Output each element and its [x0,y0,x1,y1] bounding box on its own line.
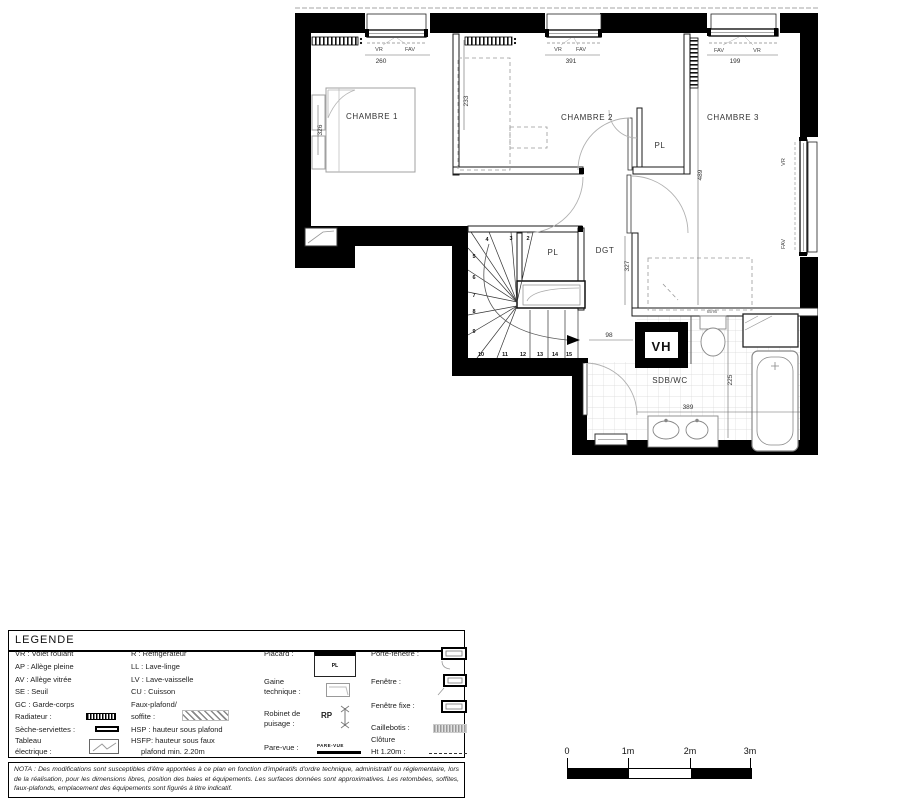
room-label-chambre3: CHAMBRE 3 [707,113,759,122]
gaine-icon [327,684,351,698]
zigzag-icon [90,740,120,755]
legend-item-fenetre-fixe: Fenêtre fixe : [371,701,415,710]
legend-item-seche-serviettes: Sèche-serviettes : [15,725,75,734]
placard-symbol-label: PL [332,663,338,669]
legend-item-soffite: soffite : [131,712,155,721]
parevue-symbol-label: PARE-VUE [317,743,344,748]
legend-item-vr: VR : Volet roulant [15,649,73,658]
scale-tick [750,758,751,768]
radiator-symbol [86,713,116,720]
step-3: 3 [509,236,512,242]
legend-item-gc: GC : Garde-corps [15,700,74,709]
soffit-hatch-symbol [182,710,229,721]
vh-label: VH [651,339,671,354]
step-12: 12 [520,352,526,358]
dim-326: 326 [317,124,324,135]
scale-label-1m: 1m [622,746,635,756]
legend-item-ll: LL : Lave-linge [131,662,180,671]
radiator-chambre2 [465,37,512,45]
label-right-vr: VR [781,158,787,166]
legend-item-porte-fenetre: Porte-fenêtre : [371,649,419,658]
step-14: 14 [552,352,559,358]
dim-389: 389 [683,404,694,411]
fenetre-fixe-icon [437,699,469,715]
step-5: 5 [472,254,475,260]
step-4: 4 [485,237,489,243]
interior-walls [453,34,818,316]
step-13: 13 [537,352,543,358]
legend-item-av: AV : Allège vitrée [15,675,72,684]
window-3 [707,14,778,45]
label-w3-vr: VR [753,48,761,54]
room-label-chambre1: CHAMBRE 1 [346,112,398,121]
room-label-dgt: DGT [596,246,615,255]
step-8: 8 [472,309,475,315]
door-arc-placard [609,110,637,138]
dim-391: 391 [566,58,577,65]
step-10: 10 [478,352,484,358]
legend-item-r: R : Réfrigérateur [131,649,186,658]
placard-symbol: PL [314,651,356,677]
label-w1-vr: VR [375,47,383,53]
label-w2-vr: VR [554,47,562,53]
door-arc-chambre2 [578,118,630,170]
dim-199: 199 [730,58,741,65]
step-15: 15 [566,352,572,358]
label-w2-fav: FAV [576,47,586,53]
legend-item-placard: Placard : [264,649,294,658]
dim-225: 225 [727,374,734,385]
legend-item-technique: technique : [264,687,301,696]
floorplan-drawing: 2 3 4 5 6 7 8 9 10 11 12 13 14 15 [295,0,818,458]
step-11: 11 [502,352,508,358]
scale-label-0: 0 [564,746,569,756]
door-arc-chambre3 [631,176,688,233]
dim-489: 489 [697,169,704,180]
legend-item-faux-plafond: Faux-plafond/ [131,700,177,709]
legend-item-robinet: Robinet de [264,709,300,718]
legend-item-ht120: Ht 1.20m : [371,747,406,756]
step-7: 7 [472,293,475,299]
door-arc-hall [527,177,583,233]
legend-title: LEGENDE [15,634,75,646]
door-leaf-chambre3 [627,175,631,233]
scale-bar-segment [691,769,751,778]
fenetre-icon [437,673,469,697]
furniture-chambre3-dashed [648,258,752,310]
wardrobe-chambre2-dashed [458,58,547,170]
legend-item-cu: CU : Cuisson [131,687,175,696]
scale-label-2m: 2m [684,746,697,756]
door-leaf-sdb [583,363,587,415]
cloture-symbol [429,753,467,754]
scale-label-3m: 3m [744,746,757,756]
scale-tick [628,758,629,768]
scale-tick [567,758,568,768]
legend-item-hsp: HSP : hauteur sous plafond [131,725,223,734]
dim-327: 327 [624,260,631,271]
vh-duct: VH [635,322,688,368]
dim-98: 98 [605,332,613,339]
legend-item-fenetre: Fenêtre : [371,677,401,686]
caillebotis-symbol [433,724,467,733]
window-2 [545,14,602,45]
legend-item-radiateur: Radiateur : [15,712,52,721]
legend-item-parevue: Pare-vue : [264,743,299,752]
radiator-chambre1 [312,37,358,45]
bed-chambre1 [312,88,415,172]
legend-item-tableau: Tableau [15,736,41,745]
staircase: 2 3 4 5 6 7 8 9 10 11 12 13 14 15 [468,232,585,358]
nota-box: NOTA : Des modifications sont susceptibl… [8,762,465,798]
legend-box: LEGENDE VR : Volet roulant AP : Allège p… [8,630,465,758]
radiators [312,37,698,88]
room-label-sdb: SDB/WC [652,376,688,385]
step-2: 2 [526,236,529,242]
legend-item-ap: AP : Allège pleine [15,662,74,671]
radiator-chambre3 [690,38,698,88]
legend-item-hsfp: HSFP: hauteur sous faux [131,736,215,745]
window-1 [365,14,428,45]
floorplan: 2 3 4 5 6 7 8 9 10 11 12 13 14 15 [295,0,818,458]
dim-233: 233 [463,95,470,106]
bathroom-shelf [743,314,798,347]
step-9: 9 [472,329,475,335]
nightstand [312,136,325,169]
dim-260: 260 [376,58,387,65]
vanity-double-sink [648,416,718,447]
legend-item-caillebotis: Caillebotis : [371,723,410,732]
electrical-panel-symbol [89,739,119,754]
room-label-pl-stairs: PL [548,248,559,257]
step-6: 6 [472,275,475,281]
scale-bar-segment [568,769,629,778]
towel-radiator [595,434,627,445]
dim-fixture: 65/95 [707,309,718,314]
porte-fenetre-icon [437,646,469,672]
window-labels: VR FAV VR FAV FAV VR VR FAV [375,47,787,249]
wall-niche [305,228,337,246]
scale-tick [690,758,691,768]
room-label-chambre2: CHAMBRE 2 [561,113,613,122]
window-right [795,137,818,257]
legend-item-puisage: puisage : [264,719,294,728]
rp-symbol-label: RP [321,711,332,720]
label-w3-fav: FAV [714,48,724,54]
floorplan-page: 2 3 4 5 6 7 8 9 10 11 12 13 14 15 [0,0,919,800]
bathtub [752,351,798,451]
legend-item-hsfp2: plafond min. 2.20m [141,747,205,756]
parevue-line-symbol [317,751,361,754]
legend-item-gaine: Gaine [264,677,284,686]
door-leaf-chambre2 [628,118,632,170]
toilet [700,316,726,356]
scale-bar: 0 1m 2m 3m [553,746,765,790]
gaine-technique-symbol [326,683,350,697]
legend-item-electrique: électrique : [15,747,52,756]
room-label-pl-top: PL [655,141,666,150]
legend-item-lv: LV : Lave-vaisselle [131,675,193,684]
legend-item-se: SE : Seuil [15,687,48,696]
legend-item-cloture: Clôture [371,735,395,744]
nota-text: NOTA : Des modifications sont susceptibl… [14,765,459,794]
towel-radiator-symbol [95,726,119,732]
label-right-fav: FAV [781,239,787,249]
label-w1-fav: FAV [405,47,415,53]
scale-bar-track [567,768,752,779]
faucet-icon [339,705,351,729]
